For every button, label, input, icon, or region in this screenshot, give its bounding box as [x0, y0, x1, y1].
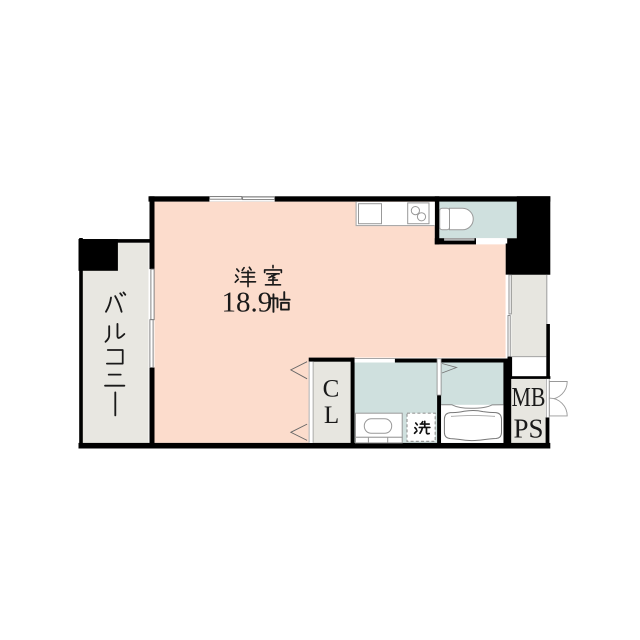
svg-text:PS: PS	[514, 414, 544, 444]
svg-text:C: C	[323, 375, 340, 402]
svg-text:18.9: 18.9	[222, 287, 273, 319]
svg-text:MB: MB	[512, 382, 546, 412]
svg-text:L: L	[324, 402, 339, 429]
